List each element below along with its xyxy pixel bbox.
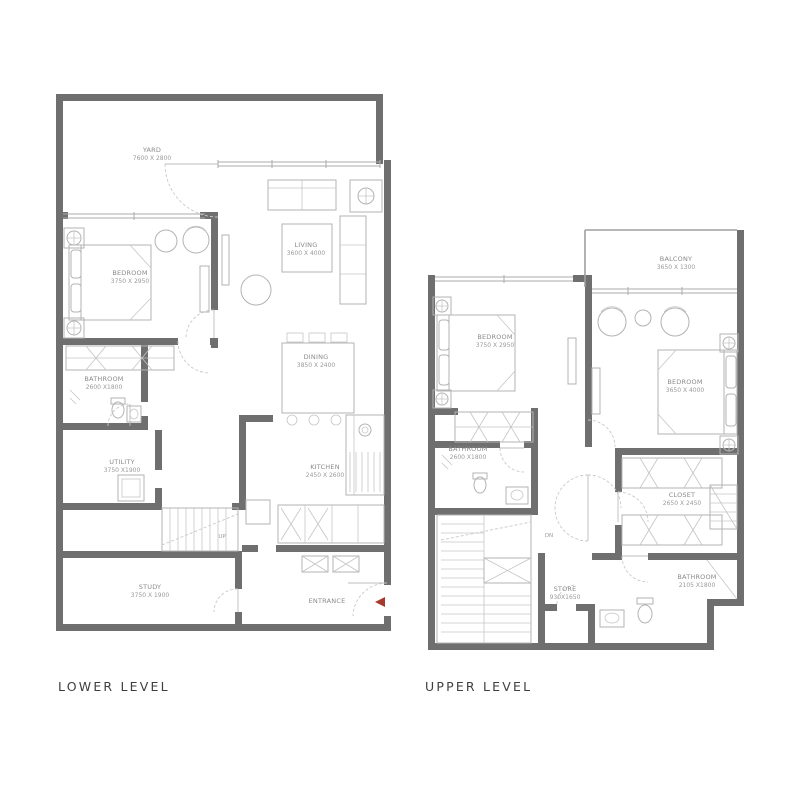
room-label-entrance: ENTRANCE xyxy=(309,597,346,605)
svg-text:2105 X1800: 2105 X1800 xyxy=(679,582,716,589)
room-label-bedroom: BEDROOM 3750 X 2950 xyxy=(111,269,150,285)
svg-text:BATHROOM: BATHROOM xyxy=(448,445,487,453)
svg-text:BATHROOM: BATHROOM xyxy=(84,375,123,383)
room-label-bedroom1: BEDROOM 3750 X 2950 xyxy=(476,333,515,349)
svg-text:3600 X 4000: 3600 X 4000 xyxy=(287,250,326,257)
lower-living-furniture xyxy=(200,180,382,312)
svg-text:LIVING: LIVING xyxy=(294,241,317,249)
room-label-store: STORE 930X1650 xyxy=(550,585,581,601)
lower-bedroom-chairs xyxy=(155,226,209,253)
svg-text:BATHROOM: BATHROOM xyxy=(677,573,716,581)
room-label-utility: UTILITY 3750 X1900 xyxy=(104,458,141,474)
svg-text:3850 X 2400: 3850 X 2400 xyxy=(297,362,336,369)
svg-text:BALCONY: BALCONY xyxy=(660,255,692,263)
room-label-bathroom1: BATHROOM 2600 X1800 xyxy=(448,445,487,461)
svg-text:UTILITY: UTILITY xyxy=(109,458,135,466)
svg-text:DINING: DINING xyxy=(304,353,329,361)
svg-text:2450 X 2600: 2450 X 2600 xyxy=(306,472,345,479)
svg-text:2600 X1800: 2600 X1800 xyxy=(86,384,123,391)
lower-windows xyxy=(63,160,380,220)
lower-dining-set xyxy=(282,333,354,425)
upper-level-caption: UPPER LEVEL xyxy=(425,679,532,694)
stairs-dn-label: DN xyxy=(545,533,553,539)
svg-text:3750 X1900: 3750 X1900 xyxy=(104,467,141,474)
entrance-arrow-icon xyxy=(375,597,385,607)
upper-level-plan: BALCONY 3650 X 1300 BEDROOM 3750 X 2950 … xyxy=(428,230,744,650)
upper-bedroom2-furniture xyxy=(592,307,738,454)
svg-text:STORE: STORE xyxy=(554,585,577,593)
room-label-bathroom2: BATHROOM 2105 X1800 xyxy=(677,573,716,589)
svg-text:KITCHEN: KITCHEN xyxy=(310,463,340,471)
svg-text:STUDY: STUDY xyxy=(139,583,161,591)
room-label-bedroom2: BEDROOM 3650 X 4000 xyxy=(666,378,705,394)
room-label-dining: DINING 3850 X 2400 xyxy=(297,353,336,369)
svg-text:930X1650: 930X1650 xyxy=(550,594,581,601)
room-label-balcony: BALCONY 3650 X 1300 xyxy=(657,255,696,271)
svg-text:3750 X 2950: 3750 X 2950 xyxy=(111,278,150,285)
lower-shaft-boxes xyxy=(302,556,359,572)
svg-text:BEDROOM: BEDROOM xyxy=(667,378,702,386)
svg-text:7600 X 2800: 7600 X 2800 xyxy=(133,155,172,162)
upper-bathroom1-fixtures xyxy=(442,455,528,504)
svg-text:3650 X 4000: 3650 X 4000 xyxy=(666,387,705,394)
svg-text:CLOSET: CLOSET xyxy=(669,491,695,499)
room-label-yard: YARD 7600 X 2800 xyxy=(133,146,172,162)
svg-text:3750 X 1900: 3750 X 1900 xyxy=(131,592,170,599)
room-label-closet: CLOSET 2650 X 2450 xyxy=(663,491,702,507)
floorplan-svg: YARD 7600 X 2800 BEDROOM 3750 X 2950 LIV… xyxy=(0,0,800,800)
room-label-kitchen: KITCHEN 2450 X 2600 xyxy=(306,463,345,479)
svg-text:2600 X1800: 2600 X1800 xyxy=(450,454,487,461)
lower-wardrobe xyxy=(66,346,174,370)
lower-utility-washer xyxy=(118,475,144,501)
floorplan-canvas: YARD 7600 X 2800 BEDROOM 3750 X 2950 LIV… xyxy=(0,0,800,800)
svg-text:3650 X 1300: 3650 X 1300 xyxy=(657,264,696,271)
lower-stairs xyxy=(162,508,238,551)
upper-stairs xyxy=(437,515,531,643)
svg-text:BEDROOM: BEDROOM xyxy=(112,269,147,277)
room-label-bathroom: BATHROOM 2600 X1800 xyxy=(84,375,123,391)
room-label-living: LIVING 3600 X 4000 xyxy=(287,241,326,257)
upper-bathroom2-fixtures xyxy=(600,560,737,627)
lower-walls xyxy=(56,94,391,631)
svg-text:3750 X 2950: 3750 X 2950 xyxy=(476,342,515,349)
stairs-up-label: UP xyxy=(218,534,226,540)
svg-text:BEDROOM: BEDROOM xyxy=(477,333,512,341)
upper-bedroom1-bed xyxy=(433,297,576,408)
upper-bedroom1-wardrobe xyxy=(455,412,533,442)
svg-text:2650 X 2450: 2650 X 2450 xyxy=(663,500,702,507)
lower-level-plan: YARD 7600 X 2800 BEDROOM 3750 X 2950 LIV… xyxy=(56,94,391,631)
lower-kitchen-counters xyxy=(246,415,384,543)
svg-text:YARD: YARD xyxy=(142,146,161,154)
room-label-study: STUDY 3750 X 1900 xyxy=(131,583,170,599)
lower-level-caption: LOWER LEVEL xyxy=(58,679,170,694)
